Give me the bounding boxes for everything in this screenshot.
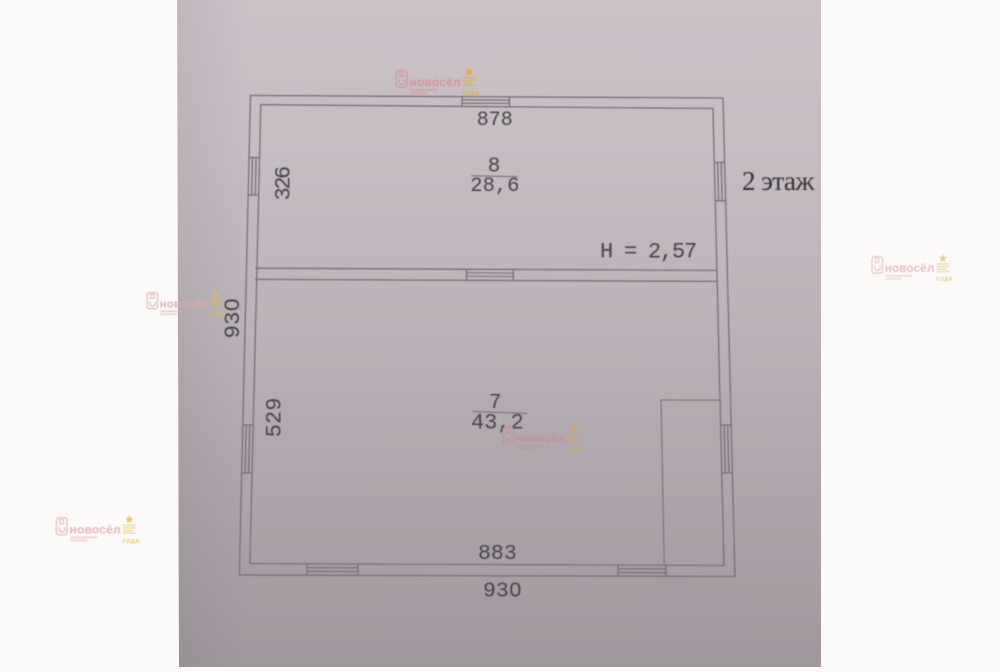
svg-text:2 этаж: 2 этаж	[742, 165, 815, 196]
svg-text:883: 883	[478, 542, 517, 566]
svg-text:878: 878	[477, 109, 513, 132]
svg-text:326: 326	[271, 167, 296, 200]
svg-text:930: 930	[483, 579, 522, 603]
svg-text:28,6: 28,6	[470, 175, 519, 198]
svg-text:529: 529	[263, 398, 288, 438]
svg-text:H = 2,57: H = 2,57	[600, 240, 696, 265]
